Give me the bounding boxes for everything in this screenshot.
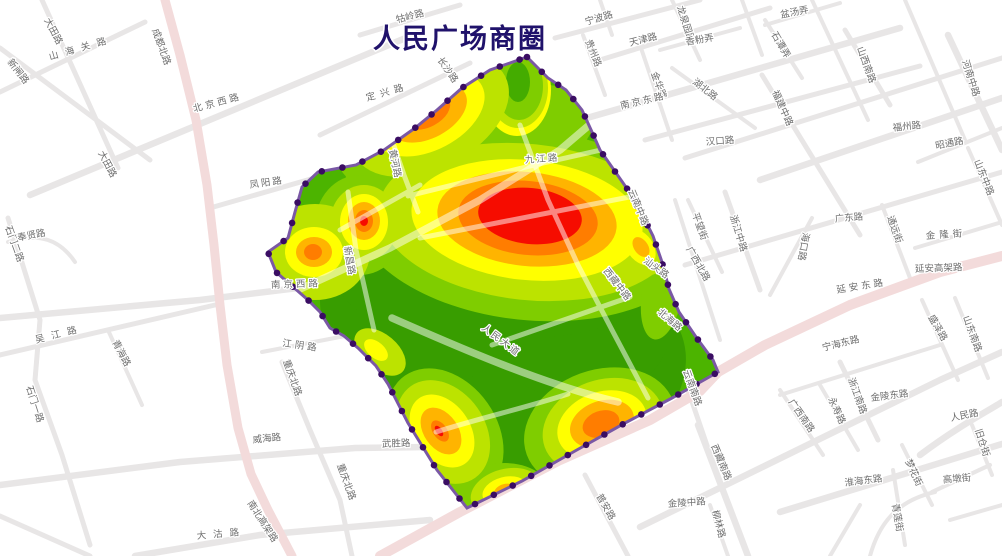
boundary-vertex-dot bbox=[707, 353, 714, 360]
boundary-vertex-dot bbox=[657, 401, 664, 408]
boundary-vertex-dot bbox=[555, 82, 562, 89]
road-label: 浙江南路 bbox=[845, 376, 869, 416]
road-label: 威海路 bbox=[252, 431, 282, 446]
boundary-vertex-dot bbox=[378, 148, 385, 155]
boundary-vertex-dot bbox=[389, 389, 396, 396]
boundary-vertex-dot bbox=[412, 124, 419, 131]
boundary-vertex-dot bbox=[399, 408, 406, 415]
boundary-vertex-dot bbox=[695, 336, 702, 343]
boundary-vertex-dot bbox=[497, 63, 504, 70]
boundary-vertex-dot bbox=[265, 251, 272, 258]
boundary-vertex-dot bbox=[600, 151, 607, 158]
boundary-vertex-dot bbox=[509, 482, 516, 489]
road-label: 宁海东路 bbox=[821, 333, 861, 354]
map-title: 人民广场商圈 bbox=[373, 24, 547, 54]
heat-blob bbox=[506, 62, 530, 102]
road-label: 盆汤弄 bbox=[779, 4, 810, 21]
road-label: 九江路 bbox=[524, 152, 559, 166]
boundary-vertex-dot bbox=[443, 479, 450, 486]
road-label: 汉口路 bbox=[705, 134, 735, 148]
road-label: 高墩街 bbox=[942, 472, 972, 486]
boundary-vertex-dot bbox=[428, 111, 435, 118]
road-label: 福建中路 bbox=[769, 88, 796, 128]
road-label: 普安路 bbox=[593, 492, 618, 523]
boundary-vertex-dot bbox=[460, 84, 467, 91]
boundary-vertex-dot bbox=[378, 371, 385, 378]
boundary-vertex-dot bbox=[612, 168, 619, 175]
road-label: 平望街 bbox=[689, 211, 710, 242]
road-label: 山西南路 bbox=[854, 45, 878, 85]
boundary-vertex-dot bbox=[638, 411, 645, 418]
boundary-vertex-dot bbox=[305, 297, 312, 304]
road-label: 南京西路 bbox=[271, 277, 321, 291]
boundary-vertex-dot bbox=[601, 431, 608, 438]
boundary-vertex-dot bbox=[665, 281, 672, 288]
road-label: 金陵中路 bbox=[667, 495, 706, 510]
boundary-vertex-dot bbox=[478, 72, 485, 79]
boundary-vertex-dot bbox=[546, 462, 553, 469]
heat-blob bbox=[304, 244, 322, 260]
road-label: 石潭弄 bbox=[768, 30, 793, 61]
road-label: 淮海东路 bbox=[844, 472, 884, 489]
road-label: 浙江中路 bbox=[727, 213, 750, 253]
boundary-vertex-dot bbox=[294, 199, 301, 206]
map-canvas[interactable]: 新闸路 大田路 山海关路 成都北路 北京西路 大田路 凤阳路 定兴路 长沙路 牯… bbox=[0, 0, 1002, 556]
boundary-vertex-dot bbox=[289, 220, 296, 227]
boundary-vertex-dot bbox=[456, 495, 463, 502]
boundary-vertex-dot bbox=[319, 168, 326, 175]
boundary-vertex-dot bbox=[528, 473, 535, 480]
boundary-vertex-dot bbox=[565, 452, 572, 459]
map-viewport[interactable]: 新闸路 大田路 山海关路 成都北路 北京西路 大田路 凤阳路 定兴路 长沙路 牯… bbox=[0, 0, 1002, 556]
boundary-vertex-dot bbox=[274, 270, 281, 277]
boundary-vertex-dot bbox=[395, 137, 402, 144]
boundary-vertex-dot bbox=[582, 113, 589, 120]
boundary-vertex-dot bbox=[319, 313, 326, 320]
road-label: 永寿路 bbox=[825, 395, 848, 426]
boundary-vertex-dot bbox=[472, 501, 479, 508]
boundary-vertex-dot bbox=[583, 442, 590, 449]
boundary-vertex-dot bbox=[653, 241, 660, 248]
boundary-vertex-dot bbox=[333, 328, 340, 335]
road-label: 重庆北路 bbox=[280, 358, 304, 398]
road-label: 盛泽路 bbox=[925, 313, 950, 344]
boundary-vertex-dot bbox=[420, 444, 427, 451]
boundary-vertex-dot bbox=[280, 238, 287, 245]
boundary-vertex-dot bbox=[570, 96, 577, 103]
road-label: 山东南路 bbox=[960, 314, 984, 354]
road-label: 海口路 bbox=[795, 231, 812, 262]
boundary-vertex-dot bbox=[350, 340, 357, 347]
boundary-vertex-dot bbox=[365, 355, 372, 362]
boundary-vertex-dot bbox=[302, 180, 309, 187]
boundary-vertex-dot bbox=[524, 54, 531, 61]
road-label: 广西南路 bbox=[786, 397, 818, 435]
road-label: 奉贤路 bbox=[16, 227, 47, 244]
boundary-vertex-dot bbox=[712, 371, 719, 378]
road-label: 武胜路 bbox=[382, 437, 411, 450]
boundary-vertex-dot bbox=[444, 97, 451, 104]
boundary-vertex-dot bbox=[516, 56, 523, 63]
road-label: 昭通路 bbox=[934, 135, 965, 152]
road-label: 通远街 bbox=[884, 214, 905, 245]
road-label: 青海路 bbox=[109, 338, 133, 369]
boundary-vertex-dot bbox=[619, 421, 626, 428]
boundary-vertex-dot bbox=[491, 492, 498, 499]
boundary-vertex-dot bbox=[590, 132, 597, 139]
north-south-elevated-road bbox=[165, 0, 292, 556]
road-label: 柳林路 bbox=[709, 509, 728, 540]
boundary-vertex-dot bbox=[431, 462, 438, 469]
road-label: 福州路 bbox=[892, 119, 922, 134]
road-label: 延安高架路 bbox=[915, 261, 963, 275]
boundary-vertex-dot bbox=[409, 426, 416, 433]
boundary-vertex-dot bbox=[672, 301, 679, 308]
boundary-vertex-dot bbox=[675, 391, 682, 398]
road-label: 广东路 bbox=[834, 211, 864, 225]
road-label: 江阴路 bbox=[282, 337, 321, 354]
road-label: 金陵东路 bbox=[870, 387, 910, 404]
road-label: 贵州路 bbox=[582, 38, 604, 69]
boundary-vertex-dot bbox=[359, 158, 366, 165]
boundary-vertex-dot bbox=[339, 164, 346, 171]
road-label: 金隆街 bbox=[925, 227, 966, 242]
road-label: 石门二路 bbox=[2, 224, 26, 264]
boundary-vertex-dot bbox=[539, 69, 546, 76]
road-label: 大田路 bbox=[41, 16, 65, 47]
